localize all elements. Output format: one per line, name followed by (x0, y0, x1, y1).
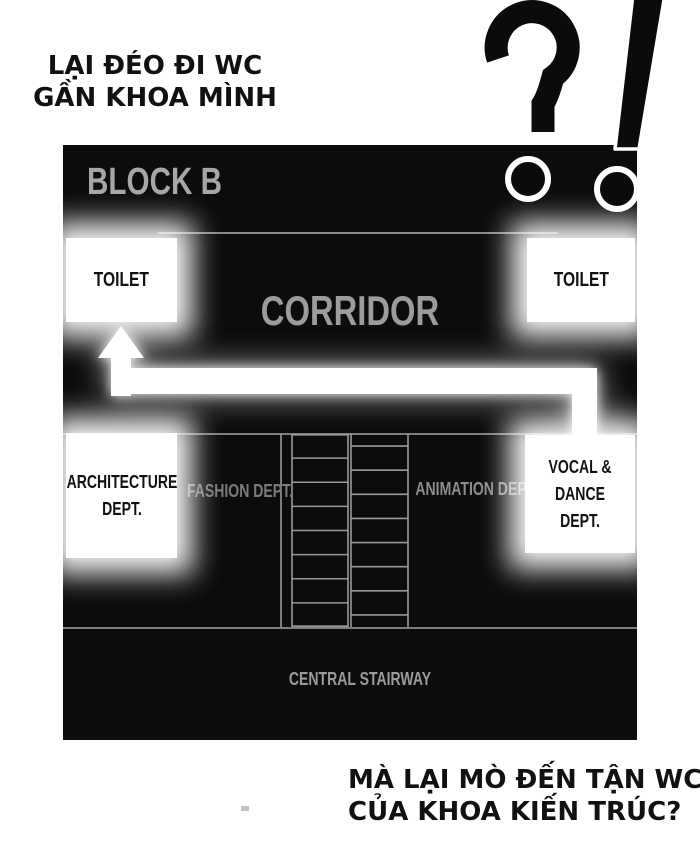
toilet-left-label: TOILET (94, 269, 149, 292)
speech-top-line2: GẦN KHOA MÌNH (22, 82, 288, 114)
animation-dept-label: ANIMATION DEPT. (415, 479, 524, 500)
architecture-dept-line1: ARCHITECTURE (66, 469, 177, 496)
vocal-dance-dept-label: VOCAL & DANCE DEPT. (537, 454, 623, 535)
speech-bubble-top: LẠI ĐÉO ĐI WC GẦN KHOA MÌNH (22, 50, 288, 114)
vocal-dance-line1: VOCAL & (537, 454, 623, 481)
vocal-dance-dept-room: VOCAL & DANCE DEPT. (525, 435, 635, 553)
toilet-right-label: TOILET (553, 269, 608, 292)
central-stairway-grid (278, 434, 411, 627)
architecture-dept-label: ARCHITECTURE DEPT. (66, 469, 177, 523)
floor-plan-panel: BLOCK B TOILET TOILET CORRIDOR ARCHITECT… (63, 145, 637, 740)
speech-bottom-line1: MÀ LẠI MÒ ĐẾN TẬN WC (348, 764, 674, 796)
exclamation-mark-icon (615, 0, 665, 149)
toilet-right-room: TOILET (527, 238, 635, 322)
watermark-mark (241, 806, 249, 811)
block-title: BLOCK B (87, 161, 222, 204)
speech-bubble-bottom: MÀ LẠI MÒ ĐẾN TẬN WC CỦA KHOA KIẾN TRÚC? (348, 764, 674, 828)
speech-top-line1: LẠI ĐÉO ĐI WC (22, 50, 288, 82)
route-arrow-right-shaft (572, 368, 597, 438)
central-stairway-label: CENTRAL STAIRWAY (253, 669, 467, 690)
route-arrow (88, 317, 608, 442)
architecture-dept-line2: DEPT. (66, 496, 177, 523)
toilet-left-room: TOILET (66, 238, 177, 322)
departments-bottom-line (63, 627, 637, 629)
fashion-dept-label: FASHION DEPT. (185, 481, 294, 502)
corridor-divider-line (158, 232, 558, 234)
comic-page: LẠI ĐÉO ĐI WC GẦN KHOA MÌNH ?! BLOCK B T… (0, 0, 700, 850)
speech-bottom-line2: CỦA KHOA KIẾN TRÚC? (348, 796, 674, 828)
architecture-dept-room: ARCHITECTURE DEPT. (66, 433, 177, 558)
vocal-dance-line2: DANCE DEPT. (537, 481, 623, 535)
question-mark-icon (496, 12, 568, 132)
route-arrow-bar (111, 368, 597, 394)
